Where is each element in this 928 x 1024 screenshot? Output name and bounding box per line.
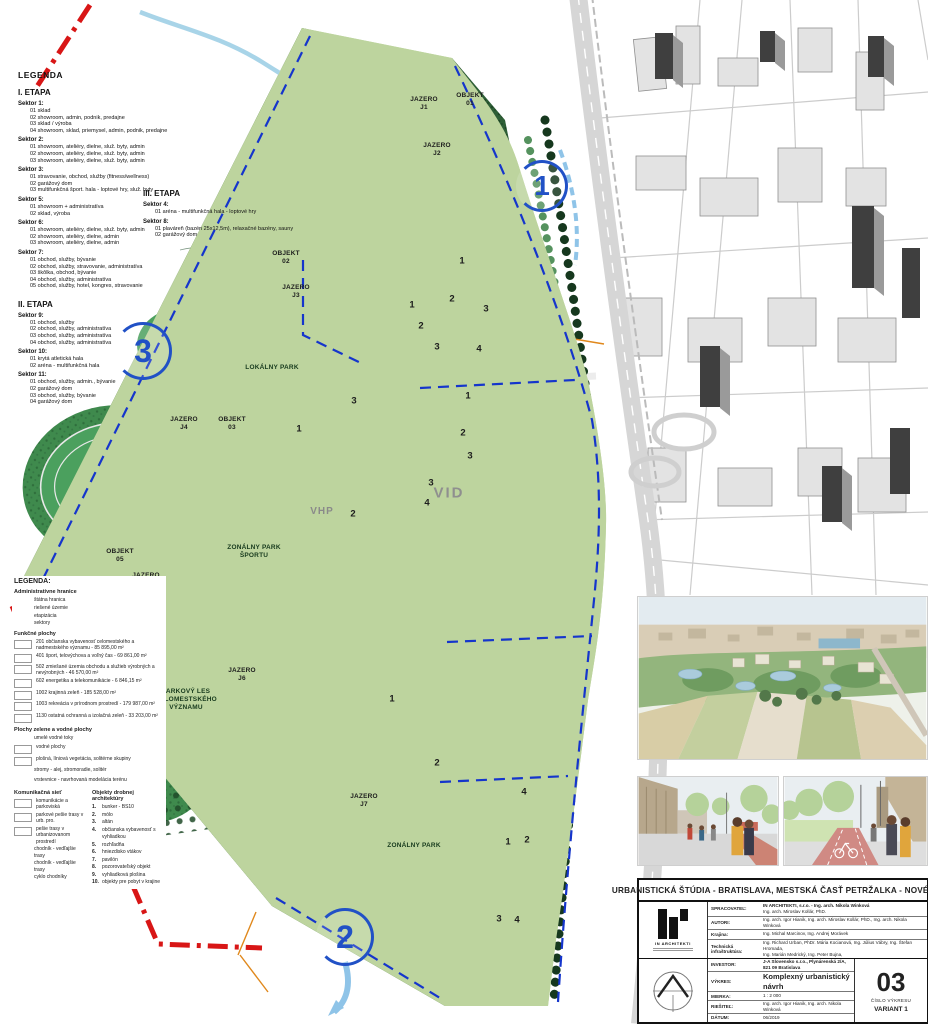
object-item: 7.pavilón (92, 857, 164, 865)
urban-path-swatch (14, 827, 32, 836)
legend-row: parkové pešie trasy v urb. pro. (14, 812, 86, 825)
objekt-label-03: OBJEKT 03 (218, 416, 246, 432)
legend-title: LEGENDA (18, 70, 228, 80)
legend-item: 03 showroom, ateliéry, dielne, služ. byt… (30, 158, 228, 165)
legend-item: 01 showroom, ateliéry, dielne, služ. byt… (30, 144, 228, 151)
object-item: 5.rozhľadňa (92, 842, 164, 850)
object-item: 1.bunker - BS10 (92, 804, 164, 812)
logo-icon (654, 909, 692, 939)
state-border-swatch (14, 599, 30, 603)
masterplan-sheet: { "legend_stage1": { "title": "LEGENDA",… (0, 0, 928, 1024)
building-number: 3 (351, 396, 356, 407)
lake-label-j2: JAZERO J2 (423, 142, 451, 158)
legend-row: etapizácia (14, 613, 164, 619)
building-number: 1 (505, 837, 510, 848)
legend-item: 04 obchod, služby, administratíva (30, 340, 228, 347)
sidewalk-swatch (14, 847, 30, 854)
row-riesitel: RIEŠITEĽ: Ing. arch. Igor Hianik, Ing. a… (708, 1001, 854, 1014)
legend-stage-3: III. ETAPA Sektor 4: 01 aréna - multifun… (143, 183, 273, 239)
building-number: 4 (514, 915, 519, 926)
building-number: 2 (434, 758, 439, 769)
zone-502-swatch (14, 665, 32, 674)
building-number: 4 (424, 498, 429, 509)
legend-row: pešie trasy v urbanizovanom prostredí (14, 826, 86, 845)
waterbody-swatch (14, 745, 32, 754)
legend-item: 02 obchod, služby, administratíva (30, 326, 228, 333)
legend-item: 01 obchod, služby, bývanie (30, 257, 228, 264)
legend-row: vrstevnice - navrhovaná modelácia terénu (14, 777, 164, 785)
legend-row: chodník - vedľajšie trasy (14, 860, 86, 873)
legend-row: 1002 krajinná zeleň - 185 528,00 m² (14, 690, 164, 700)
legend-item: 01 krytá atletická hala (30, 356, 228, 363)
zone-201-swatch (14, 640, 32, 649)
legend-row: 502 zmiešané územia obchodu a služieb vý… (14, 664, 164, 677)
phase-badge-2: 2 (316, 908, 374, 966)
sector-block: Sektor 4: 01 aréna - multifunkčná hala -… (143, 202, 273, 216)
building-number: 3 (467, 451, 472, 462)
park-label-zonalny: ZONÁLNY PARK (387, 842, 440, 850)
row-mierka: MIERKA: 1 : 2 000 (708, 992, 854, 1001)
cycleway-swatch (14, 877, 30, 880)
legend-row: chodník - vedľajšie trasy (14, 846, 86, 859)
zone-1003-swatch (14, 702, 32, 711)
legend-row: komunikácie a parkoviská (14, 798, 86, 811)
building-number: 3 (434, 342, 439, 353)
park-label-zonalny-sportu: ZONÁLNY PARK ŠPORTU (227, 544, 280, 560)
sector-block: Sektor 10: 01 krytá atletická hala02 aré… (18, 349, 228, 369)
legend-row: 201 občianska vybavenosť celomestského a… (14, 639, 164, 652)
building-number: 3 (496, 914, 501, 925)
stage-1-heading: I. ETAPA (18, 88, 228, 97)
legend-row: 1003 rekreácia v prírodnom prostredí - 1… (14, 701, 164, 711)
road-swatch (14, 799, 32, 808)
sector-block: Sektor 2: 01 showroom, ateliéry, dielne,… (18, 137, 228, 164)
legend-item: 04 garážový dom (30, 399, 228, 406)
sector-block: Sektor 11: 01 obchod, služby, admin., bý… (18, 372, 228, 405)
transport-legend: Komunikačná sieť komunikácie a parkovisk… (14, 786, 86, 887)
drawing-number-label: ČÍSLO VÝKRESU (871, 998, 911, 1003)
building-number: 1 (389, 694, 394, 705)
building-number: 1 (296, 424, 301, 435)
legend-item: 01 stravovanie, obchod, služby (fitness/… (30, 174, 228, 181)
title-block: URBANISTICKÁ ŠTÚDIA - BRATISLAVA, MESTSK… (637, 878, 928, 1024)
vegetation-swatch (14, 757, 32, 766)
legend-row: 1130 ostatná ochranná a izolačná zeleň -… (14, 713, 164, 723)
drawing-number: 03 (877, 969, 906, 995)
object-item: 8.pozorovateľský objekt (92, 864, 164, 872)
legend-item: 01 sklad (30, 108, 228, 115)
company-logo: IN ARCHITEKTI (639, 902, 708, 958)
building-number: 1 (465, 391, 470, 402)
lake-label-j7: JAZERO J7 (350, 793, 378, 809)
legend-item: 02 showroom, admin, podnik, predajne (30, 115, 228, 122)
objekt-label-01: OBJEKT 01 (456, 92, 484, 108)
sector-block: Sektor 1: 01 sklad02 showroom, admin, po… (18, 101, 228, 134)
building-number: 3 (483, 304, 488, 315)
legend-row: plošná, líniová vegetácia, solitérne sku… (14, 756, 164, 766)
lake-label-j3: JAZERO J3 (282, 284, 310, 300)
legend-item: 03 škôlka, obchod, bývanie (30, 270, 228, 277)
row-krajina: Krajina: Ing. Michal Marcinov, Ing. Andr… (708, 930, 927, 940)
legend-item: 02 garážový dom (155, 232, 273, 239)
solved-area-swatch (14, 607, 30, 611)
lake-label-j4: JAZERO J4 (170, 416, 198, 432)
map-legend: LEGENDA: Administratívne hranice štátna … (12, 576, 166, 889)
legend-row: umelé vodné toky (14, 735, 164, 743)
drawing-number-cell: 03 ČÍSLO VÝKRESU VARIANT 1 (854, 959, 927, 1022)
building-number: 2 (418, 321, 423, 332)
building-number: 2 (350, 509, 355, 520)
sidewalk2-swatch (14, 863, 30, 866)
stage-line-swatch (14, 615, 30, 619)
legend-item: 03 obchod, služby, administratíva (30, 333, 228, 340)
compass-icon (651, 969, 695, 1013)
contours-swatch (14, 778, 30, 785)
row-investor: INVESTOR: J-A Slovensko s.r.o., Plynáren… (708, 959, 854, 972)
building-number: 1 (409, 300, 414, 311)
legend-item: 03 showroom, ateliéry, dielne, admin (30, 240, 228, 247)
zone-401-swatch (14, 654, 32, 663)
legend-item: 02 garážový dom (30, 386, 228, 393)
trees-swatch (14, 768, 30, 775)
sector-block: Sektor 8: 01 plaváreň (bazén 25x12,5m), … (143, 219, 273, 239)
object-item: 2.mólo (92, 812, 164, 820)
legend-item: 04 obchod, služby, administratíva (30, 277, 228, 284)
zone-602-swatch (14, 679, 32, 688)
zone-1002-swatch (14, 691, 32, 700)
legend-row: 401 šport, telovýchova a voľný čas - 69 … (14, 653, 164, 663)
row-autori: AUTORI: Ing. arch. Igor Hianik, Ing. arc… (708, 917, 927, 930)
building-number: 2 (449, 294, 454, 305)
legend-item: 03 obchod, služby, bývanie (30, 393, 228, 400)
legend-item: 01 obchod, služby (30, 320, 228, 327)
legend-row: 602 energetika a telekomunikácie - 6 846… (14, 678, 164, 688)
legend-item: 02 obchod, služby, stravovanie, administ… (30, 264, 228, 271)
building-number: 2 (524, 835, 529, 846)
zone-1130-swatch (14, 714, 32, 723)
stage-2-heading: II. ETAPA (18, 300, 228, 309)
object-item: 4.občianska vybavenosť s vyhliadkou (92, 827, 164, 842)
lake-label-j1: JAZERO J1 (410, 96, 438, 112)
legend-item: 01 plaváreň (bazén 25x12,5m), relaxačné … (155, 226, 273, 233)
building-number: 3 (428, 478, 433, 489)
area-label-vhp: VHP (310, 506, 334, 519)
variant-label: VARIANT 1 (874, 1006, 908, 1013)
building-number: 4 (476, 344, 481, 355)
waterway-swatch (14, 736, 30, 743)
park-path-swatch (14, 813, 32, 822)
legend-item: 01 obchod, služby, admin., bývanie (30, 379, 228, 386)
legend-row: štátna hranica (14, 597, 164, 603)
legend-row: stromy - alej, stromoradie, solitér (14, 767, 164, 775)
sector-line-swatch (14, 622, 30, 625)
building-number: 2 (460, 428, 465, 439)
legend-row: riešené územie (14, 605, 164, 611)
city-context-map (578, 0, 928, 1024)
north-compass (639, 959, 708, 1022)
lake-label-j6: JAZERO J6 (228, 667, 256, 683)
row-vykres: VÝKRES: Komplexný urbanistický návrh (708, 972, 854, 993)
object-item: 6.hniezdisko vtákov (92, 849, 164, 857)
sector-block: Sektor 7: 01 obchod, služby, bývanie02 o… (18, 250, 228, 290)
object-item: 10.objekty pre pobyt v krajine (92, 879, 164, 887)
legend-row: vodné plochy (14, 744, 164, 754)
building-number: 1 (459, 256, 464, 267)
legend-row: cyklo chodníky (14, 874, 86, 880)
building-number: 4 (521, 787, 526, 798)
legend-item: 05 obchod, služby, hotel, kongres, strav… (30, 283, 228, 290)
street-render-promenade (637, 776, 779, 866)
legend-row: sektory (14, 620, 164, 626)
object-item: 9.vyhliadková plošina (92, 872, 164, 880)
objects-legend: Objekty drobnej architektúry 1.bunker - … (92, 786, 164, 887)
row-spracovatel: SPRACOVATEĽ: IN ARCHITEKTI, s.r.o. - Ing… (708, 902, 927, 917)
street-render-cycleway (783, 776, 928, 866)
row-technicka: Technická infraštruktúra: Ing. Richard U… (708, 940, 927, 958)
legend-item: 03 sklad / výroba (30, 121, 228, 128)
objekt-label-02: OBJEKT 02 (272, 250, 300, 266)
legend-item: 04 showroom, sklad, priemysel, admin, po… (30, 128, 228, 135)
legend-item: 02 aréna - multifunkčná hala (30, 363, 228, 370)
phase-badge-1: 1 (516, 160, 568, 212)
objekt-label-05: OBJEKT 05 (106, 548, 134, 564)
object-item: 3.altán (92, 819, 164, 827)
sector-block: Sektor 9: 01 obchod, služby02 obchod, sl… (18, 313, 228, 346)
project-title: URBANISTICKÁ ŠTÚDIA - BRATISLAVA, MESTSK… (639, 880, 927, 902)
logo-text: IN ARCHITEKTI (655, 941, 691, 946)
legend-item: 01 aréna - multifunkčná hala - loptové h… (155, 209, 273, 216)
area-label-vid: VID (433, 485, 464, 504)
row-datum: DÁTUM: 06/2019 (708, 1014, 854, 1022)
aerial-render (637, 596, 928, 760)
park-label-lokalny: LOKÁLNY PARK (245, 364, 298, 372)
legend-item: 02 showroom, ateliéry, dielne, služ. byt… (30, 151, 228, 158)
stage-3-heading: III. ETAPA (143, 189, 273, 198)
